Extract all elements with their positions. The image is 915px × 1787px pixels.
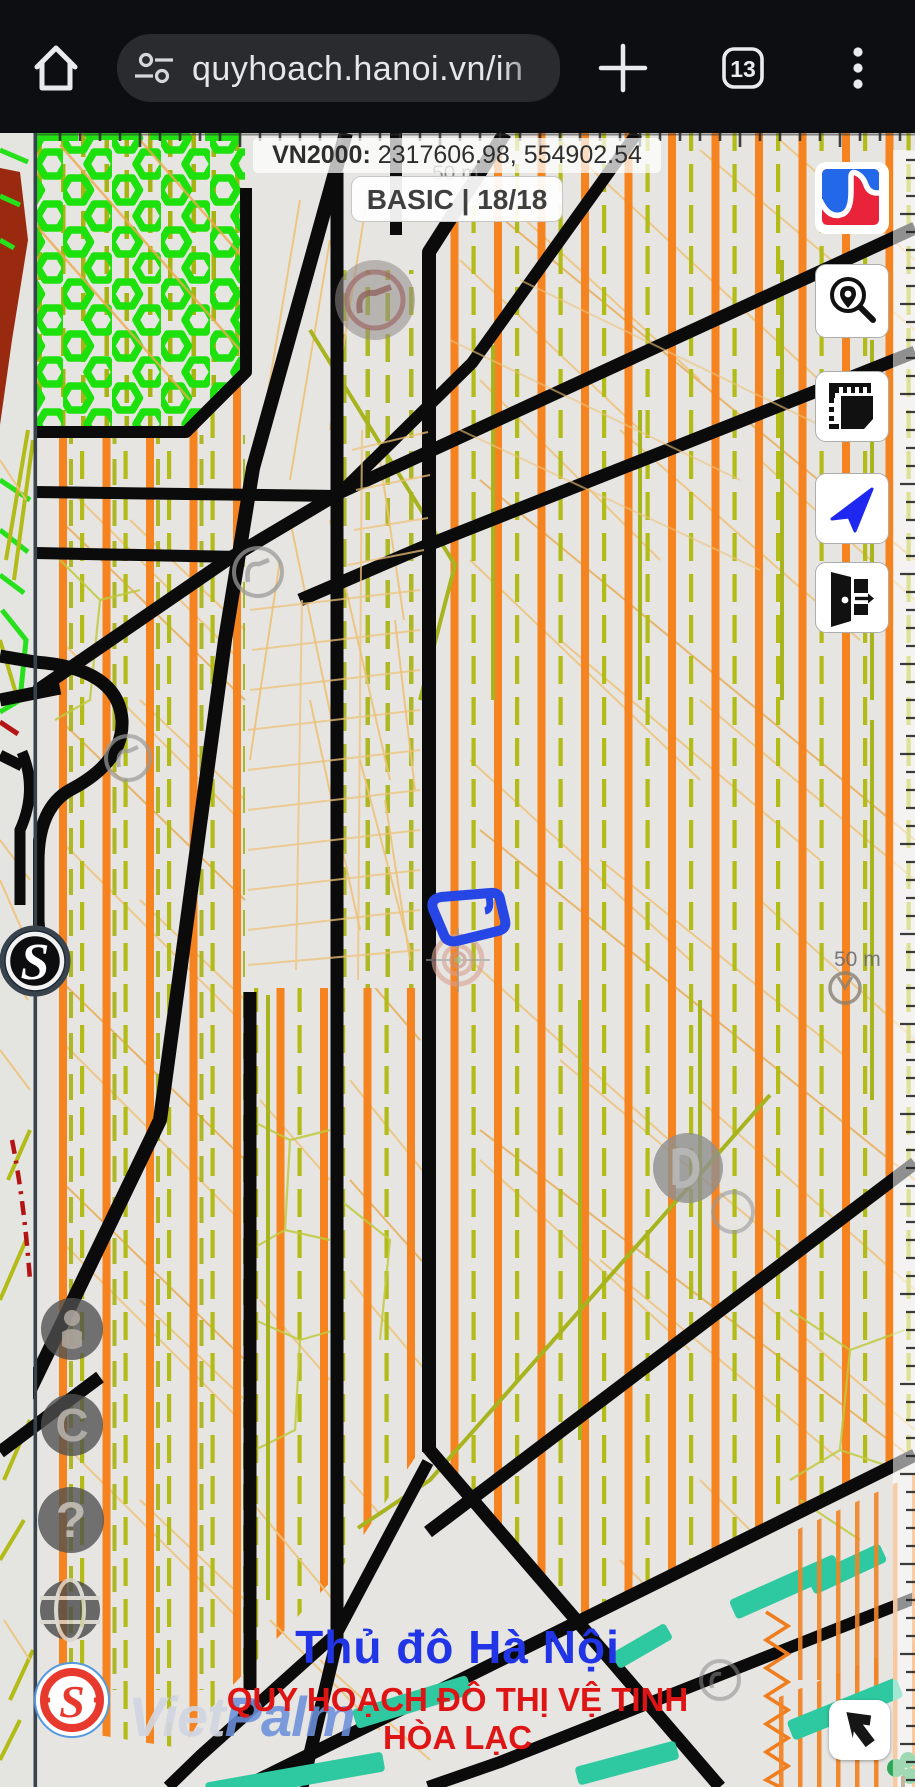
svg-text:?: ?: [56, 1492, 87, 1548]
svg-text:S: S: [21, 934, 50, 991]
svg-text:C: C: [55, 1399, 88, 1451]
svg-text:50 m: 50 m: [834, 948, 881, 971]
svg-text:quyhoach.hanoi.vn/in: quyhoach.hanoi.vn/in: [192, 50, 523, 88]
svg-text:13: 13: [730, 56, 756, 82]
